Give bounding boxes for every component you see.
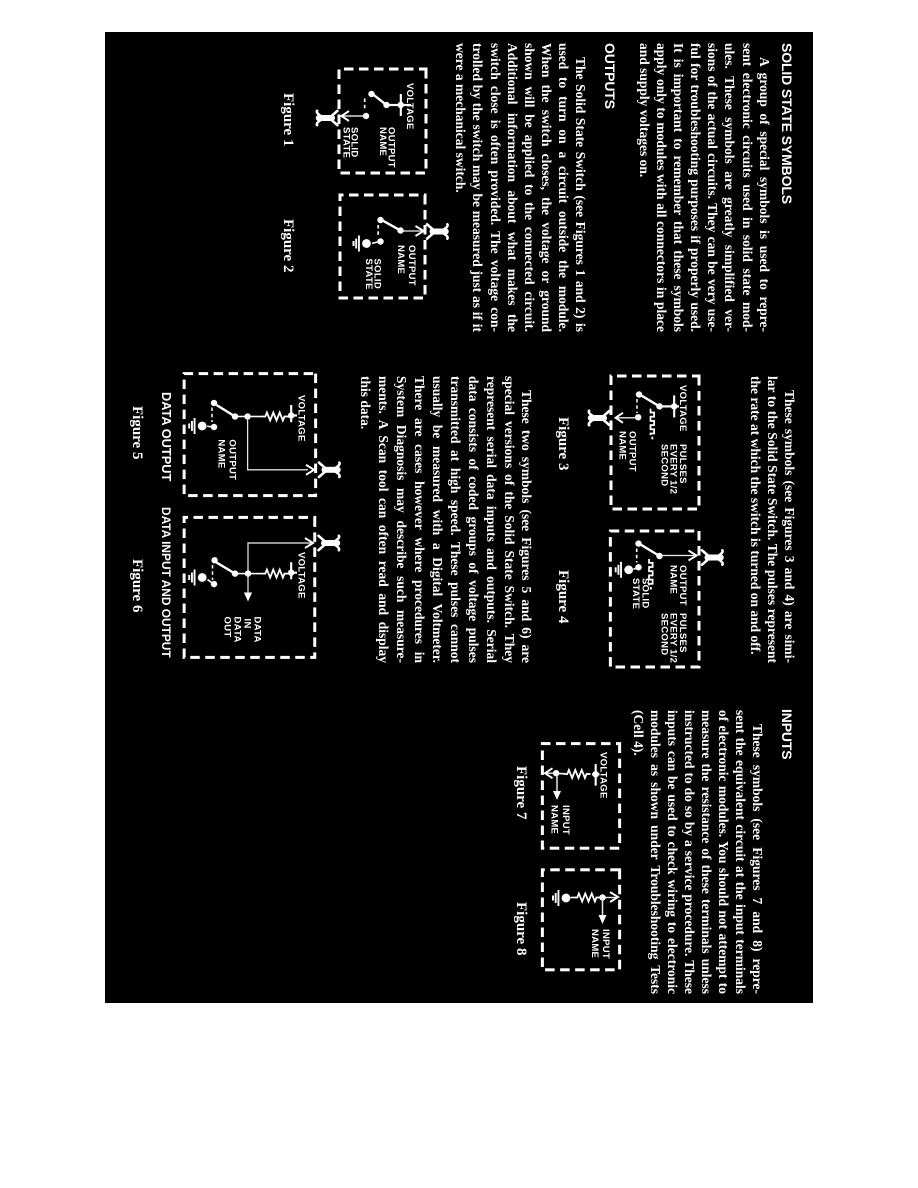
svg-text:VOLTAGE: VOLTAGE xyxy=(677,385,688,432)
svg-text:OUT: OUT xyxy=(222,617,233,638)
svg-text:NAME: NAME xyxy=(377,127,388,156)
svg-text:INPUT: INPUT xyxy=(560,805,571,835)
svg-text:OUTPUT: OUTPUT xyxy=(227,439,238,480)
svg-text:STATE: STATE xyxy=(363,259,374,290)
svg-text:NAME: NAME xyxy=(589,929,600,958)
svg-text:VOLTAGE: VOLTAGE xyxy=(404,83,415,130)
svg-text:VOLTAGE: VOLTAGE xyxy=(296,552,307,599)
svg-text:NAME: NAME xyxy=(216,439,227,468)
svg-text:SECOND: SECOND xyxy=(658,444,669,486)
svg-text:VOLTAGE: VOLTAGE xyxy=(296,395,307,442)
svg-text:INPUT: INPUT xyxy=(600,929,611,959)
svg-text:NAME: NAME xyxy=(617,431,628,460)
svg-text:SECOND: SECOND xyxy=(658,613,669,655)
svg-text:NAME: NAME xyxy=(549,805,560,834)
svg-text:STATE: STATE xyxy=(630,578,641,609)
svg-text:OUTPUT: OUTPUT xyxy=(406,245,417,286)
svg-text:NAME: NAME xyxy=(395,245,406,274)
svg-text:NAME: NAME xyxy=(668,565,679,594)
svg-text:STATE: STATE xyxy=(341,127,352,158)
